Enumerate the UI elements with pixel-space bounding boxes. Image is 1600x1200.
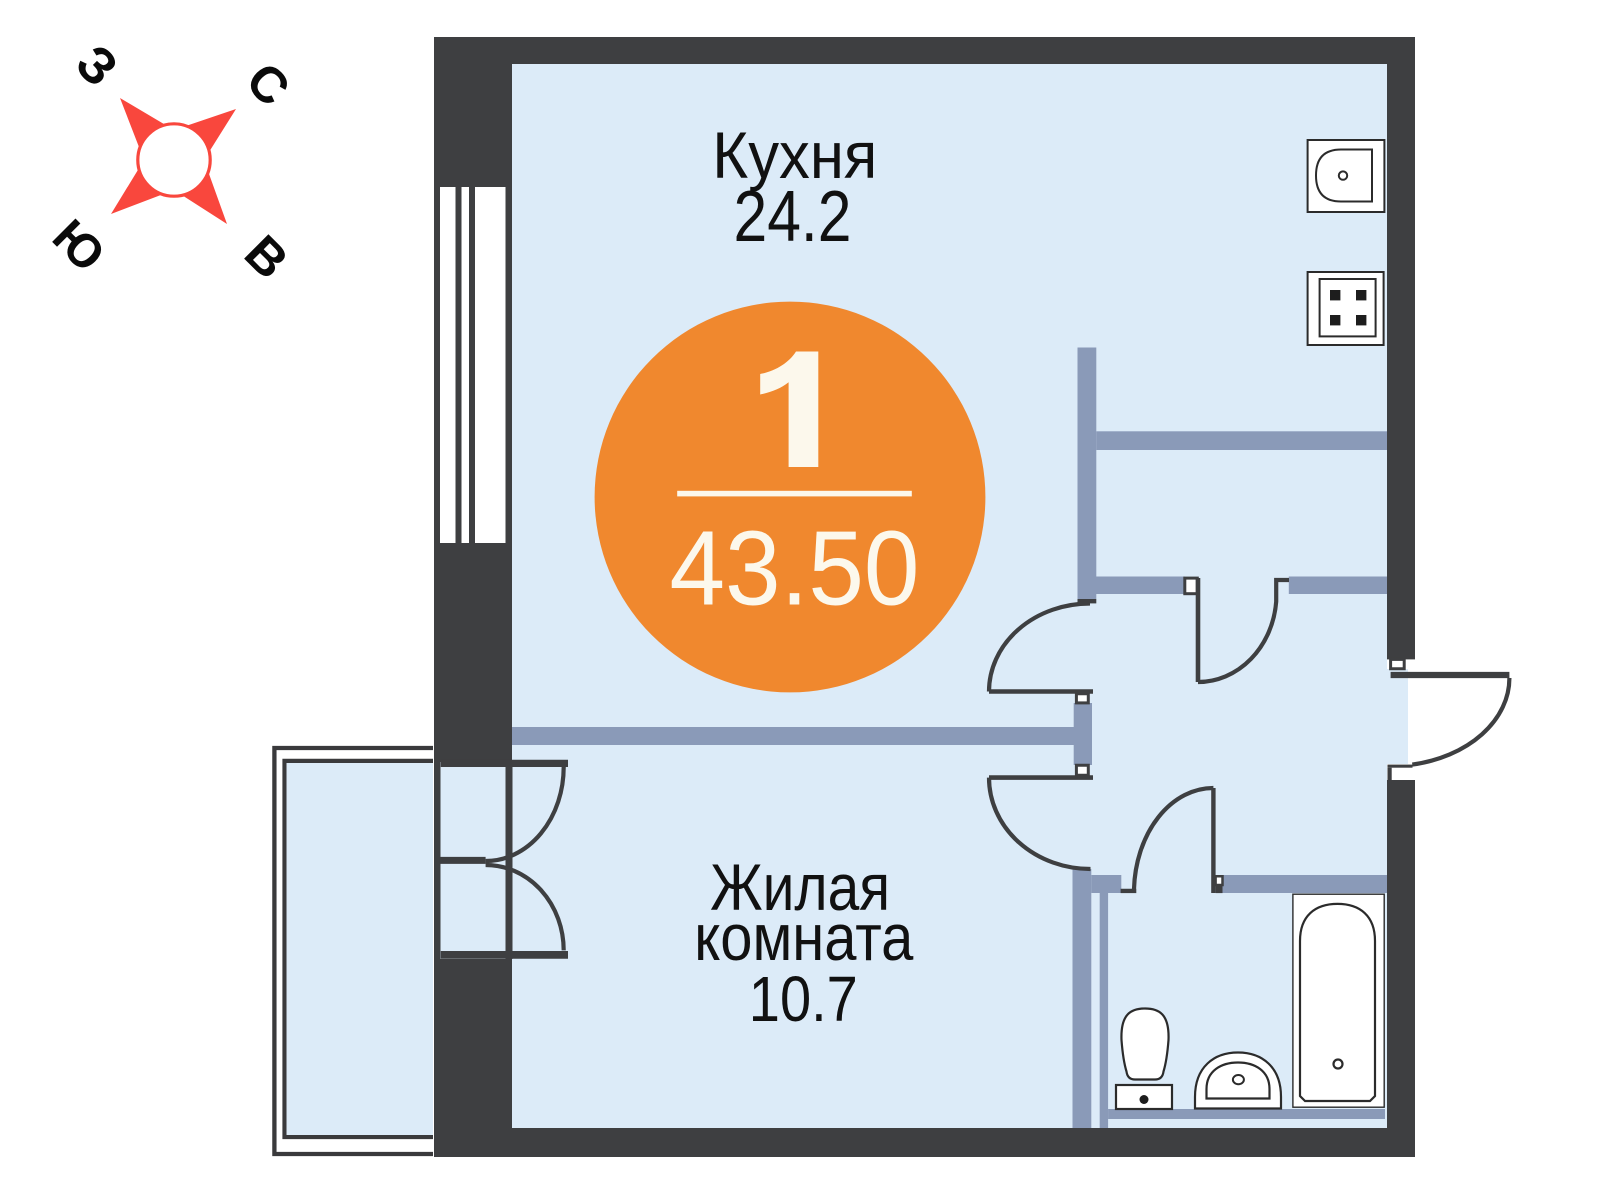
svg-text:43.50: 43.50 (670, 510, 920, 628)
svg-text:24.2: 24.2 (734, 177, 852, 257)
svg-text:10.7: 10.7 (749, 963, 858, 1035)
